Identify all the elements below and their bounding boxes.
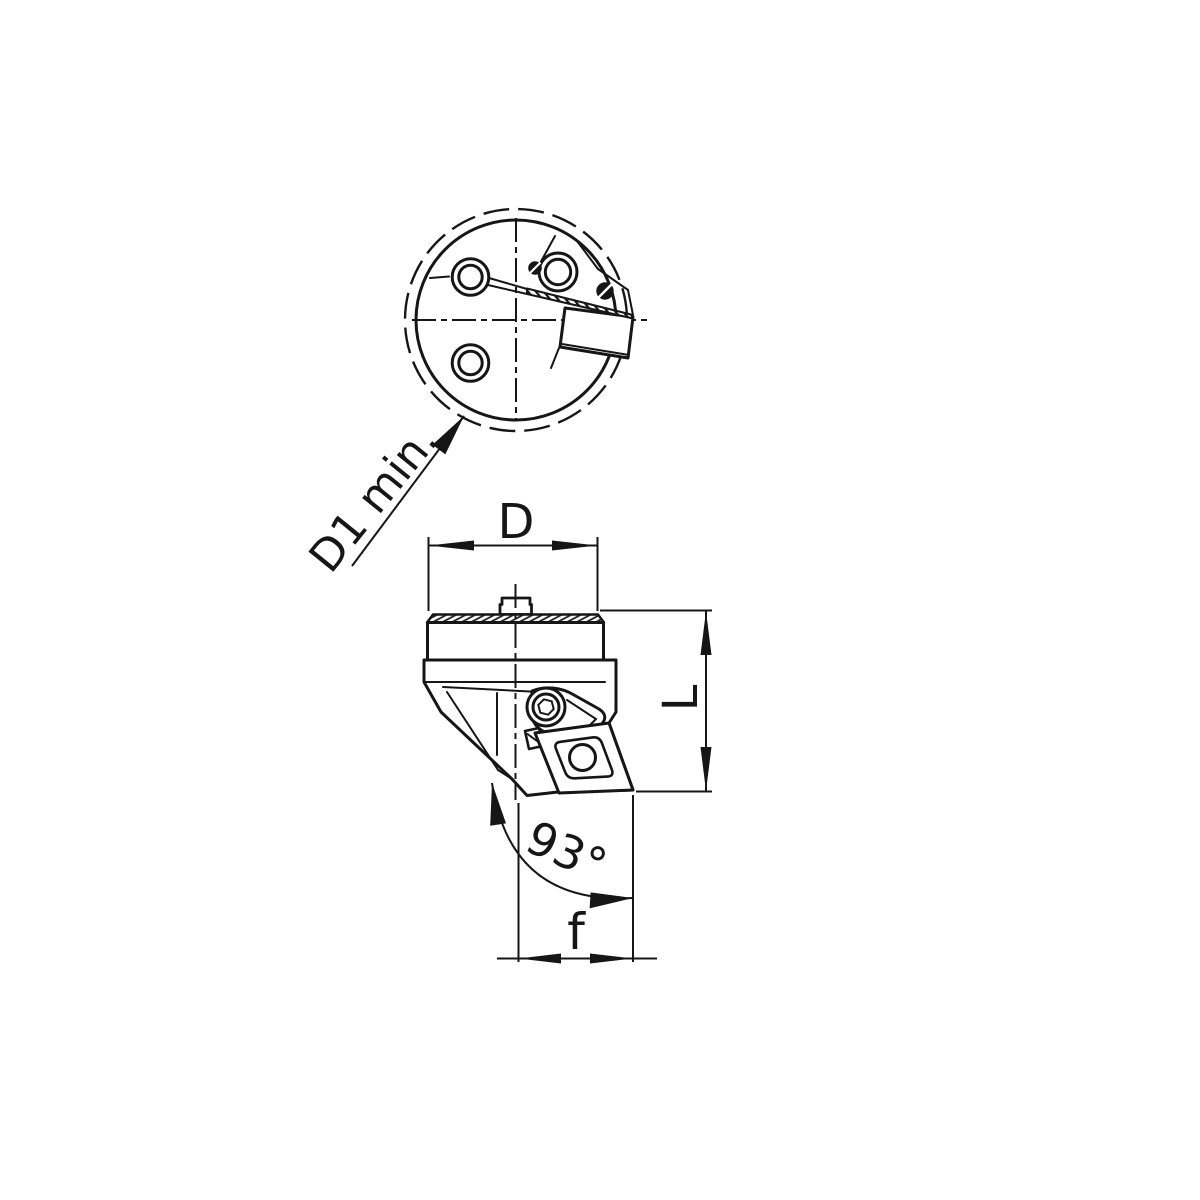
label-l: L [653, 684, 709, 711]
dim-arrow-right [590, 954, 633, 964]
counterbore-hole-upper-right [539, 253, 577, 291]
label-d1-min: D1 min. [300, 416, 448, 582]
leader-d1-min: D1 min. [300, 416, 464, 582]
label-f: f [567, 903, 586, 961]
top-view: D1 min. [300, 209, 649, 582]
dim-arrow-left [429, 541, 475, 551]
clamp-screw-small-left [528, 261, 542, 275]
label-angle: 93° [518, 810, 614, 892]
clamp-screw-small-right [596, 282, 613, 299]
technical-drawing: D1 min. D [0, 0, 1200, 1200]
angle-arrow-right [590, 892, 633, 908]
dim-arrow-right [552, 541, 598, 551]
dimension-d: D [429, 494, 598, 611]
tool-body [424, 584, 633, 800]
dim-arrow-up [701, 611, 712, 655]
counterbore-hole-lower-left [452, 345, 489, 382]
dim-arrow-left [519, 954, 562, 964]
counterbore-hole-upper-left [452, 259, 489, 296]
label-d: D [498, 494, 535, 550]
insert-screw-hole [570, 745, 596, 771]
dim-arrow-down [701, 747, 712, 791]
angle-93: 93° [490, 783, 633, 908]
angle-arrow-up [490, 783, 506, 826]
clamp-screw-side [527, 688, 565, 726]
side-view: D [424, 494, 712, 964]
hex-socket [538, 699, 553, 714]
